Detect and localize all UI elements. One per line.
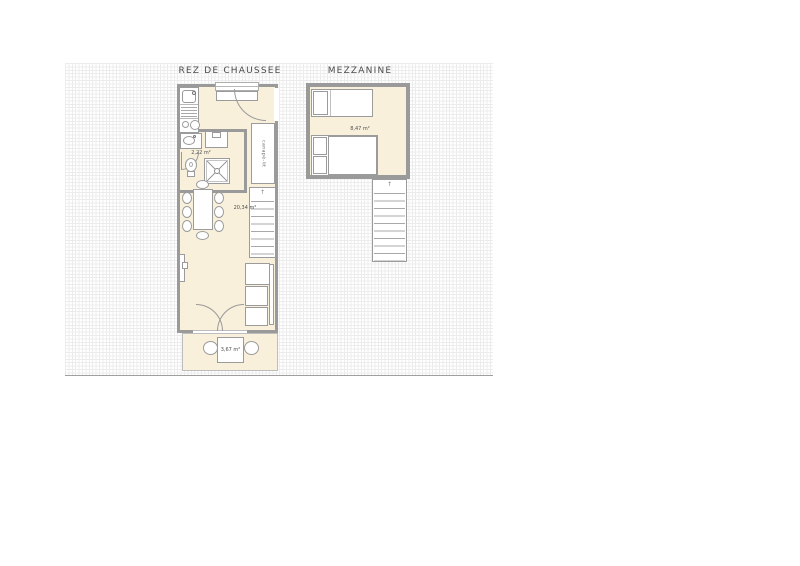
terrace-table: 3,67 m² (217, 337, 244, 363)
chair-icon (214, 206, 224, 218)
stairs-up-arrow-icon: ↑ (260, 190, 265, 196)
bed-pillow (313, 91, 328, 115)
chair-icon (196, 180, 209, 189)
radiator-knob (182, 262, 188, 269)
sofa-cushion (245, 307, 268, 326)
mezzanine-title: MEZZANINE (300, 66, 420, 76)
dish-drainer-icon (181, 107, 197, 117)
terrace-chair-icon (244, 341, 259, 355)
bed-pillow (313, 156, 327, 174)
washbasin-faucet-icon (193, 135, 196, 138)
chair-icon (182, 220, 192, 232)
sofa-chaise (245, 263, 270, 285)
sofa-backrest (269, 264, 274, 325)
window-glass-line (216, 86, 258, 87)
cabinet-label: canapé-lit (252, 124, 274, 183)
bed-mattress (328, 136, 377, 175)
chair-icon (182, 192, 192, 204)
kitchen-divider (180, 118, 198, 119)
toilet-bowl-detail (189, 162, 193, 167)
sofa-cushion (245, 286, 268, 306)
hob-burner-icon (182, 121, 189, 128)
shower-drain-icon (214, 168, 220, 174)
sink-faucet-icon (192, 91, 196, 95)
chair-icon (196, 231, 209, 240)
ground-floor-stairs: ↑ (249, 187, 276, 258)
entrance-door-opening (274, 88, 279, 121)
tall-cabinet: canapé-lit (251, 123, 275, 184)
chair-icon (214, 220, 224, 232)
dining-table (193, 189, 213, 230)
toilet-tank (187, 171, 195, 177)
bathroom-area-label: 2,22 m² (186, 150, 216, 156)
floor-plan-canvas: REZ DE CHAUSSEE MEZZANINE 2,22 m² canapé… (0, 0, 800, 566)
bathroom-wall-right (244, 129, 247, 191)
bed-pillow (313, 137, 327, 155)
ground-floor-title: REZ DE CHAUSSEE (160, 66, 300, 76)
washing-machine-detail (212, 132, 221, 138)
stair-treads (374, 193, 405, 261)
mezzanine-area-label: 8,47 m² (344, 126, 376, 132)
stairs-up-arrow-icon: ↑ (387, 182, 392, 188)
living-area-label: 20,34 m² (228, 205, 262, 211)
terrace-chair-icon (203, 341, 218, 355)
chair-icon (182, 206, 192, 218)
mezzanine-stairs: ↑ (372, 179, 407, 262)
terrace-area-label: 3,67 m² (221, 347, 241, 353)
bed-fold-line (330, 90, 331, 116)
drawing-grid (65, 63, 493, 376)
kitchen-divider (180, 104, 198, 105)
chair-icon (214, 192, 224, 204)
